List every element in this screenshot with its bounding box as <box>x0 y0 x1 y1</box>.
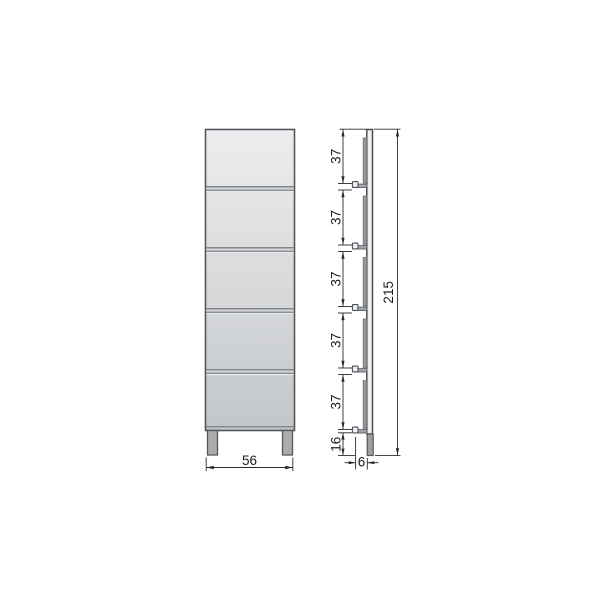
arrow-right-icon <box>285 466 293 469</box>
depth-dimension-label: 6 <box>358 455 366 470</box>
divider-highlight <box>206 252 293 253</box>
front-panel-divider <box>206 247 293 253</box>
arrow-down-icon <box>341 422 344 429</box>
shelf-lip <box>352 366 358 372</box>
total-height-dimension: 215 <box>374 129 401 455</box>
width-dimension-label: 56 <box>242 453 257 468</box>
divider-gap <box>206 371 293 373</box>
arrow-up-icon <box>341 252 344 259</box>
shelf-lip <box>352 305 358 311</box>
arrow-down-icon <box>341 361 344 368</box>
front-leg-right <box>283 431 293 456</box>
arrow-right-icon <box>349 461 356 464</box>
side-back-panel <box>367 130 373 435</box>
arrow-left-icon <box>367 461 374 464</box>
side-rail <box>363 196 367 245</box>
shelf-lip <box>352 182 358 188</box>
divider-line-lower <box>206 373 293 375</box>
shelf-lip <box>352 243 358 249</box>
shelf-bar <box>358 430 367 433</box>
divider-line-upper <box>206 186 293 188</box>
shelf-bar <box>358 307 367 310</box>
plinth-dimension-label: 16 <box>329 437 344 452</box>
divider-highlight <box>206 313 293 314</box>
segment-dimension-label: 37 <box>329 271 344 286</box>
side-rail <box>363 258 367 307</box>
front-panel-divider <box>206 186 293 192</box>
side-rail <box>363 381 367 429</box>
total-height-label: 215 <box>381 281 396 304</box>
shelf-bar <box>358 369 367 372</box>
side-rail <box>363 138 367 183</box>
arrow-down-icon <box>341 238 344 245</box>
side-foot <box>367 434 373 456</box>
segment-dimension-label: 37 <box>329 149 344 164</box>
segment-dimension-label: 37 <box>329 394 344 409</box>
arrow-left-icon <box>206 466 214 469</box>
arrow-down-icon <box>341 299 344 306</box>
height-dimension-chain: 37 37 37 37 37 16 <box>329 129 367 455</box>
front-panel-divider <box>206 308 293 314</box>
arrow-down-icon <box>341 176 344 183</box>
front-view: 56 <box>206 130 295 472</box>
arrow-up-icon <box>396 129 399 136</box>
divider-line-lower <box>206 312 293 314</box>
side-rail <box>363 319 367 368</box>
arrow-up-icon <box>341 375 344 382</box>
divider-gap <box>206 310 293 312</box>
arrow-up-icon <box>341 313 344 320</box>
divider-gap <box>206 188 293 190</box>
arrow-down-icon <box>396 448 399 455</box>
segment-dimension-label: 37 <box>329 333 344 348</box>
front-leg-left <box>208 431 218 456</box>
divider-line-upper <box>206 247 293 249</box>
divider-gap <box>206 249 293 251</box>
side-view: 37 37 37 37 37 16 <box>329 129 401 469</box>
divider-line-upper <box>206 369 293 371</box>
front-cabinet-body <box>206 130 295 431</box>
shelf-lip <box>352 427 358 433</box>
divider-line-upper <box>206 308 293 310</box>
shelf-bar <box>358 184 367 187</box>
divider-line-lower <box>206 251 293 253</box>
divider-highlight <box>206 374 293 375</box>
shelf-bar <box>358 246 367 249</box>
arrow-up-icon <box>341 190 344 197</box>
arrow-up-icon <box>341 129 344 136</box>
front-panel-divider <box>206 369 293 375</box>
width-dimension: 56 <box>206 453 293 471</box>
technical-drawing-canvas: 56 <box>0 0 600 600</box>
furniture-dimension-drawing: 56 <box>0 0 600 600</box>
divider-line-lower <box>206 190 293 192</box>
front-bottom-seam <box>206 426 293 427</box>
segment-dimension-label: 37 <box>329 210 344 225</box>
divider-highlight <box>206 191 293 192</box>
